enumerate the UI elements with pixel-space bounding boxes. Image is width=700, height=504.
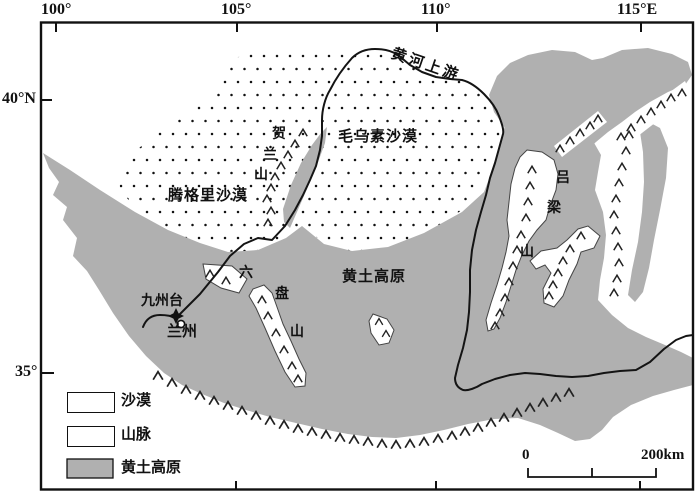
label-luliang-2: 梁 — [547, 202, 561, 216]
label-mu-us-desert: 毛乌素沙漠 — [338, 130, 418, 145]
legend-gray-swatch — [67, 459, 113, 478]
label-liupan-3: 山 — [290, 326, 304, 340]
loess-plateau-map: 100° 105° 110° 115°E 40°N 35° 黄河上游 毛乌素沙漠… — [0, 0, 700, 504]
axis-label-100: 100° — [41, 2, 71, 18]
label-helan-3: 山 — [254, 169, 268, 183]
east-plateau-band — [628, 120, 668, 302]
label-tengger-desert: 腾格里沙漠 — [168, 189, 248, 204]
label-helan-2: 兰 — [263, 149, 277, 163]
label-lanzhou: 兰州 — [167, 325, 197, 340]
label-luliang-1: 吕 — [556, 172, 570, 186]
label-loess-plateau: 黄土高原 — [342, 270, 406, 285]
ne-chain-3-symbols — [610, 131, 633, 296]
label-jiuzhoutai: 九州台 — [141, 295, 183, 309]
scale-label-end: 200km — [641, 448, 684, 463]
scale-bar — [528, 468, 656, 477]
label-liupan-1: 六 — [239, 267, 253, 281]
label-liupan-2: 盘 — [275, 288, 289, 302]
legend-label-loess: 黄土高原 — [121, 461, 181, 476]
axis-label-35: 35° — [15, 364, 37, 380]
axis-label-110: 110° — [421, 2, 451, 18]
axis-label-105: 105° — [221, 2, 251, 18]
label-luliang-3: 山 — [520, 246, 534, 260]
axis-label-115e: 115°E — [617, 2, 657, 18]
legend-swatch-desert — [67, 392, 115, 413]
legend-label-mountains: 山脉 — [121, 428, 151, 443]
scale-label-start: 0 — [522, 448, 530, 463]
label-helan-1: 贺 — [272, 128, 286, 142]
legend-label-desert: 沙漠 — [121, 394, 151, 409]
axis-label-40n: 40°N — [2, 91, 36, 107]
legend-swatch-mountains — [67, 426, 115, 447]
